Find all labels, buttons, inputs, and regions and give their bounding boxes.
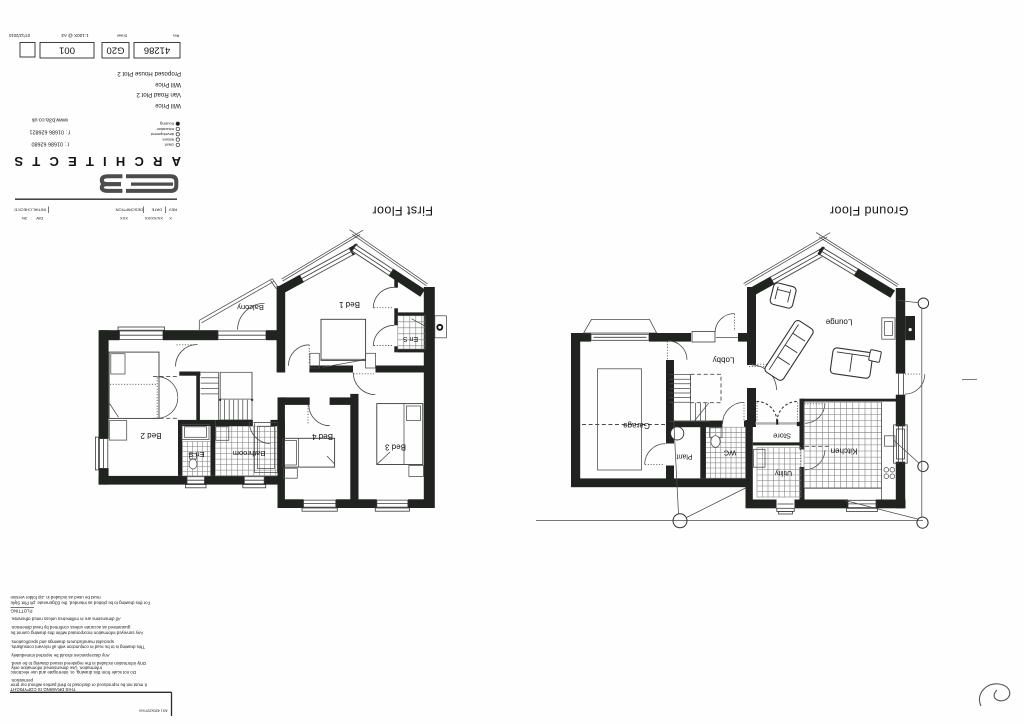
- svg-text:REV: REV: [168, 208, 177, 213]
- svg-text:Utility: Utility: [774, 469, 792, 476]
- svg-text:Drawn: Drawn: [117, 33, 127, 37]
- svg-text:Bed 4: Bed 4: [311, 432, 332, 441]
- svg-text:XX/XX/XX: XX/XX/XX: [144, 216, 163, 221]
- svg-text:Rev: Rev: [173, 33, 180, 37]
- svg-text:All dimensions are in millimet: All dimensions are in millimetres unless…: [11, 616, 121, 621]
- svg-text:Bed 2: Bed 2: [140, 431, 161, 440]
- svg-text:education: education: [157, 127, 174, 132]
- svg-text:XXX: XXX: [120, 216, 128, 221]
- svg-text:Bathroom: Bathroom: [233, 449, 266, 458]
- svg-text:f : 01686 626821: f : 01686 626821: [30, 128, 70, 134]
- svg-text:Only information included in t: Only information included in the registe…: [11, 661, 147, 666]
- svg-text:Do not scale from this drawing: Do not scale from this drawing, or, inte…: [10, 670, 136, 675]
- svg-text:INITIAL: INITIAL: [32, 208, 46, 213]
- svg-text:client: client: [164, 143, 174, 148]
- svg-text:Bed 3: Bed 3: [384, 442, 405, 451]
- svg-text:WC: WC: [723, 448, 736, 457]
- svg-text:Store: Store: [773, 431, 791, 440]
- svg-text:001: 001: [59, 45, 75, 56]
- svg-text:Proposed House Plot 2: Proposed House Plot 2: [117, 70, 181, 77]
- svg-text:Plant: Plant: [676, 452, 692, 459]
- svg-text:41286: 41286: [144, 45, 170, 56]
- svg-text:t : 01686 62680: t : 01686 62680: [32, 140, 69, 146]
- svg-text:It must not be reproduced or d: It must not be reproduced or disclosed t…: [10, 683, 147, 688]
- svg-text:2fx: 2fx: [22, 216, 27, 221]
- svg-text:X: X: [169, 216, 172, 221]
- svg-text:Balcony: Balcony: [237, 303, 264, 312]
- svg-text:specialist manufacturers drawi: specialist manufacturers drawings and sp…: [11, 640, 114, 645]
- svg-text:must be used as included in .z: must be used as included in .zip folder …: [10, 595, 101, 600]
- svg-text:Ground Floor: Ground Floor: [830, 204, 909, 218]
- svg-text:ARCHITECTS: ARCHITECTS: [5, 154, 181, 169]
- svg-text:Lobby: Lobby: [713, 355, 735, 364]
- svg-text:Kitchen: Kitchen: [831, 446, 858, 455]
- svg-text:THIS DRAWING IS COPYRIGHT: THIS DRAWING IS COPYRIGHT: [10, 687, 75, 692]
- svg-text:07/12/2010: 07/12/2010: [8, 33, 30, 38]
- svg-text:www.b3a.co.uk: www.b3a.co.uk: [31, 116, 69, 122]
- svg-text:leisure: leisure: [161, 137, 174, 142]
- svg-text:PLOTTING: PLOTTING: [10, 609, 33, 614]
- svg-text:Will Price: Will Price: [155, 81, 181, 88]
- svg-text:Van Road Plot 2: Van Road Plot 2: [136, 91, 181, 98]
- svg-text:housing: housing: [160, 122, 174, 127]
- svg-text:CHECK'D: CHECK'D: [14, 208, 32, 213]
- svg-text:En S: En S: [403, 335, 419, 342]
- svg-text:information. Use dimensioned i: information. Use dimensioned information…: [11, 666, 102, 671]
- svg-text:DESCRIPTION: DESCRIPTION: [116, 208, 143, 213]
- svg-text:Lounge: Lounge: [825, 317, 852, 326]
- svg-text:Will Price: Will Price: [155, 102, 181, 109]
- svg-text:Any surveyed information incor: Any surveyed information incorporated wi…: [10, 630, 143, 635]
- svg-text:En S: En S: [188, 450, 204, 459]
- svg-text:1:100X @ A3: 1:100X @ A3: [61, 33, 89, 38]
- svg-text:A3 | 420x297mm: A3 | 420x297mm: [139, 709, 168, 713]
- svg-text:Bed 1: Bed 1: [338, 300, 359, 309]
- svg-text:This drawing is to be read in: This drawing is to be read in conjunctio…: [11, 645, 145, 650]
- svg-text:For this drawing to be plotted: For this drawing to be plotted as intend…: [10, 601, 150, 606]
- svg-text:permission.: permission.: [11, 678, 33, 683]
- svg-text:DW: DW: [36, 216, 43, 221]
- svg-text:Garage: Garage: [623, 421, 650, 430]
- svg-text:First Floor: First Floor: [372, 204, 433, 218]
- svg-text:development: development: [150, 132, 174, 137]
- svg-text:DATE: DATE: [151, 208, 162, 213]
- svg-text:Any discrepancies should be re: Any discrepancies should be reported imm…: [11, 653, 110, 658]
- svg-text:G20: G20: [107, 45, 125, 56]
- svg-text:guaranteed as accurate unless: guaranteed as accurate unless confirmed …: [11, 625, 131, 630]
